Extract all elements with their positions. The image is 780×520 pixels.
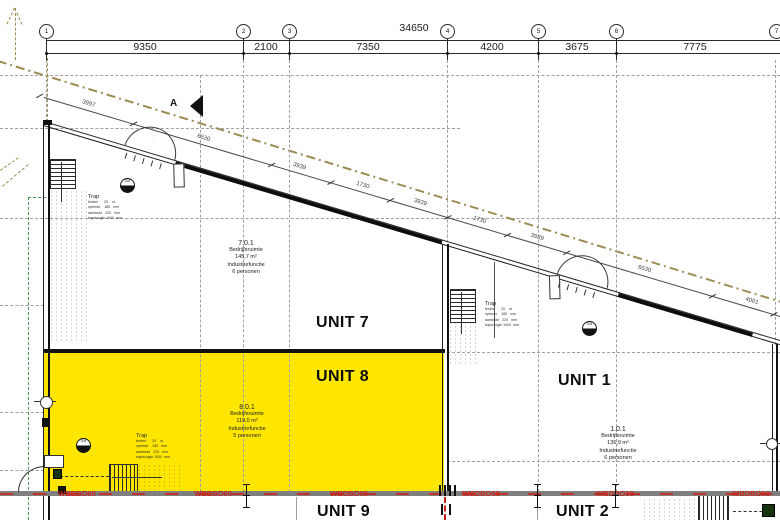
facade-wall (42, 121, 780, 346)
grid-bubble: 7 (769, 24, 780, 39)
fire-rating-label: WBDBO60 (54, 489, 100, 498)
stair-arrow (61, 162, 62, 202)
joint-hatch (441, 504, 443, 515)
fire-separation-dashes (0, 493, 780, 496)
right-exterior-wall (772, 344, 778, 492)
joint-symbol-icon (242, 484, 251, 508)
stair-hatch (642, 498, 698, 520)
unit1-info: 1.0.1 Bedrijfsruimte 136,9 m² Industrief… (568, 426, 668, 463)
section-marker-icon (190, 95, 203, 117)
grid-bubble: 6 (609, 24, 624, 39)
facade-dim-label: 4001 (745, 297, 760, 307)
stair-spec: Trap treden 20 st optrede 185 mm aantred… (88, 194, 122, 222)
total-dimension-label: 34650 (384, 22, 444, 34)
equipment-box (53, 469, 62, 479)
joint-hatch (449, 485, 451, 496)
joint-hatch (439, 485, 441, 496)
section-marker-label: A (170, 98, 177, 109)
fire-rating-label: WBDBO60 (190, 489, 236, 498)
boundary-mark (2, 164, 29, 187)
unit2-label: UNIT 2 (556, 503, 609, 520)
staircase (109, 464, 138, 494)
stair-arrow (461, 292, 462, 334)
closet-box (44, 455, 64, 468)
grid-line (0, 412, 44, 413)
joint-symbol-icon (611, 484, 620, 508)
grid-line (447, 352, 780, 353)
wall-vent-icon (40, 396, 53, 409)
unit-separation-wall (442, 244, 449, 494)
dimension-label: 3675 (547, 41, 607, 53)
unit9-label: UNIT 9 (317, 503, 370, 520)
grid-bubble: 3 (282, 24, 297, 39)
wall-detail (43, 120, 52, 125)
grid-bubble: 2 (236, 24, 251, 39)
unit8-label: UNIT 8 (316, 368, 369, 386)
unit8-info: 8.0.1 Bedrijfsruimte 119,0 m² Industrief… (197, 404, 297, 441)
meter-symbol-icon: GM (76, 438, 91, 453)
grid-line (775, 60, 776, 345)
joint-hatch (449, 504, 451, 515)
unit7-label: UNIT 7 (316, 314, 369, 332)
stair-spec: Trap treden 20 st optrede 185 mm aantred… (485, 301, 519, 329)
dimension-label: 7350 (338, 41, 398, 53)
door-swing-icon (581, 256, 615, 290)
meter-symbol-icon: GM (582, 321, 597, 336)
facade-dim-label: 6530 (196, 133, 211, 143)
boundary-line (47, 58, 48, 122)
grid-marker-circle (766, 438, 778, 450)
fire-rating-label: WBDBO60 (458, 489, 504, 498)
fire-rating-label: WBDBO60 (728, 489, 774, 498)
floor-plan: 1 2 3 4 5 6 7 9350 2100 7350 4200 3675 7… (0, 0, 780, 520)
grid-line (0, 75, 780, 76)
fire-wall-joint (444, 497, 446, 520)
grid-line (0, 305, 44, 306)
boundary-marker-stem (15, 8, 16, 60)
grid-bubble: 1 (39, 24, 54, 39)
joint-hatch (454, 485, 456, 496)
staircase (698, 495, 729, 520)
meter-symbol-icon: GM (120, 178, 135, 193)
dimension-label: 4200 (462, 41, 522, 53)
grid-bubble: 5 (531, 24, 546, 39)
facade-dim-label: 1730 (355, 181, 370, 191)
unit8-top-wall (43, 349, 445, 353)
wall-detail (42, 418, 50, 427)
staircase (450, 289, 476, 323)
dimension-label: 9350 (115, 41, 175, 53)
dim-line-lower (46, 53, 780, 54)
site-boundary-line (0, 60, 780, 303)
boundary-arrow (6, 8, 15, 25)
facade-dim-label: 6530 (637, 265, 652, 275)
stair-hatch (448, 321, 478, 365)
door-path (55, 476, 109, 477)
dimension-label: 7775 (665, 41, 725, 53)
stair-hatch (49, 190, 87, 343)
door-swing-icon (149, 127, 183, 161)
grid-line (296, 497, 297, 520)
grid-bubble: 4 (440, 24, 455, 39)
fire-rating-label: WBDBO60 (326, 489, 372, 498)
stair-spec: Trap treden 20 st optrede 185 mm aantred… (136, 433, 170, 461)
unit7-info: 7.0.1 Bedrijfsruimte 145,7 m² Industrief… (196, 240, 296, 277)
door-leaf (173, 163, 185, 187)
grid-line (538, 60, 539, 492)
facade-dim-label: 1730 (472, 216, 487, 226)
staircase (50, 159, 76, 189)
facade-dim-label: 3939 (530, 233, 545, 243)
dimension-label: 2100 (236, 41, 296, 53)
unit1-label: UNIT 1 (558, 372, 611, 390)
equipment-box (762, 504, 775, 517)
boundary-mark (0, 157, 19, 170)
facade-dim-label: 3939 (413, 198, 428, 208)
joint-hatch (444, 485, 446, 496)
stair-arrow (112, 477, 162, 478)
joint-symbol-icon (533, 484, 542, 508)
facade-dim-label: 3939 (292, 162, 307, 172)
facade-dim-label: 3997 (81, 99, 96, 109)
